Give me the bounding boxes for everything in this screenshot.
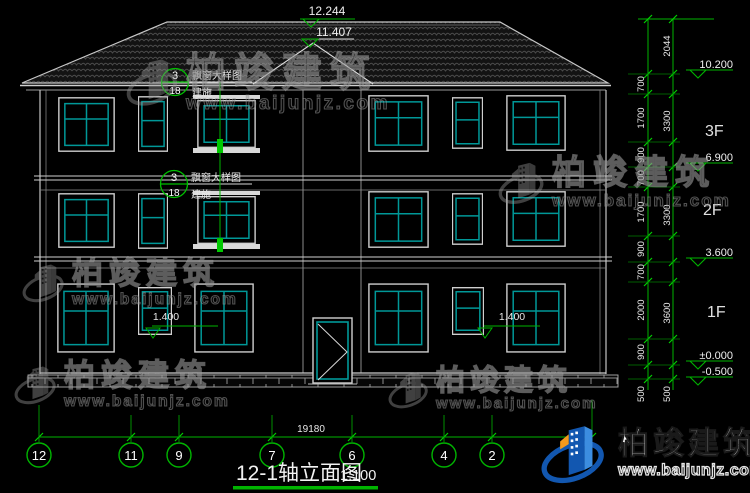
- drawing-scale: 1:100: [340, 468, 376, 484]
- dim-label: 700: [636, 76, 647, 92]
- dim-label: 3300: [662, 110, 673, 131]
- company-logo-url: www.baijunjz.com: [618, 461, 750, 480]
- level-value: 6.900: [705, 152, 733, 164]
- elevation-canvas: 3 18 飘窗大样图 建施 3 18 飘窗大样图 建施 12.244 11.40…: [0, 0, 750, 493]
- floor-label-3f: 3F: [705, 123, 724, 140]
- level-value: 3.600: [705, 247, 733, 259]
- callout-sheet: 18: [169, 86, 181, 97]
- sill-dim: 1.400: [499, 311, 525, 323]
- dim-label: 900: [636, 241, 647, 257]
- callout-label: 飘窗大样图: [191, 171, 241, 184]
- floor-label-1f: 1F: [707, 304, 726, 321]
- dim-label: 3300: [662, 204, 673, 225]
- axis-number: 9: [175, 448, 182, 463]
- axis-number: 11: [124, 448, 138, 463]
- callout-number: 3: [171, 172, 177, 184]
- axis-number: 7: [268, 448, 275, 463]
- dim-label: 1700: [636, 107, 647, 128]
- callout-sublabel: 建施: [191, 188, 211, 201]
- level-value: 11.407: [316, 25, 352, 39]
- title-underline: [233, 486, 378, 490]
- company-logo: 柏竣建筑 www.baijunjz.com: [534, 421, 750, 487]
- total-width-dim: 19180: [297, 424, 325, 435]
- level-value: -0.500: [702, 366, 733, 378]
- cad-elevation-drawing: 3 18 飘窗大样图 建施 3 18 飘窗大样图 建施 12.244 11.40…: [0, 0, 750, 493]
- axis-number: 6: [348, 448, 355, 463]
- axis-number: 4: [440, 448, 447, 463]
- callout-label: 飘窗大样图: [192, 69, 242, 82]
- dim-label: 2044: [662, 35, 673, 56]
- callout-sublabel: 建施: [192, 86, 212, 99]
- dim-label: 500: [662, 386, 673, 402]
- callout-sheet: 18: [168, 188, 180, 199]
- level-value: 10.200: [699, 59, 733, 71]
- floor-label-2f: 2F: [703, 202, 722, 219]
- sill-dim: 1.400: [153, 311, 179, 323]
- bay-window-sill: [193, 244, 260, 249]
- callout-number: 3: [172, 70, 178, 82]
- level-value: ±0.000: [699, 350, 733, 362]
- dim-label: 700: [636, 264, 647, 280]
- dim-label: 3600: [662, 302, 673, 323]
- company-logo-name: 柏竣建筑: [618, 428, 750, 461]
- dim-label: 700: [636, 170, 647, 186]
- dim-label: 900: [636, 147, 647, 163]
- company-logo-icon: [534, 421, 614, 487]
- axis-number: 12: [32, 448, 46, 463]
- dim-label: 2000: [636, 299, 647, 320]
- bay-window-sill: [193, 148, 260, 153]
- dim-label: 500: [636, 386, 647, 402]
- entry-door: [308, 318, 357, 384]
- axis-number: 2: [488, 448, 495, 463]
- level-value: 12.244: [309, 4, 346, 18]
- dim-label: 1700: [636, 201, 647, 222]
- dim-label: 900: [636, 344, 647, 360]
